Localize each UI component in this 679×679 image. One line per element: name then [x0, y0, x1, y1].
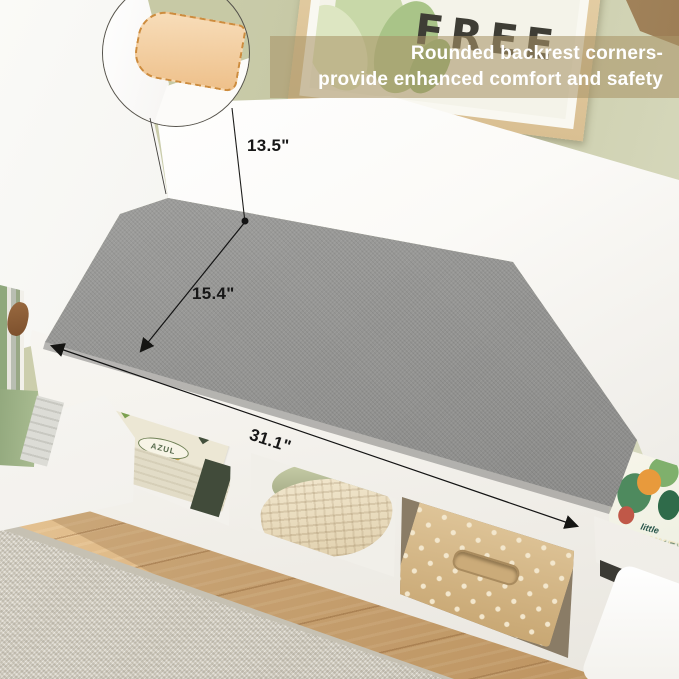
- promo-band: Rounded backrest corners- provide enhanc…: [270, 36, 679, 98]
- dimension-label-backrest-height: 13.5": [247, 136, 290, 156]
- magnifier-circle: [102, 0, 250, 127]
- book-art-leaf: [656, 489, 679, 522]
- headline-line-2: provide enhanced comfort and safety: [270, 67, 663, 93]
- headline-line-1: Rounded backrest corners-: [270, 41, 663, 67]
- dimension-label-seat-depth: 15.4": [192, 284, 235, 304]
- product-photo: FREE AZUL: [0, 0, 679, 679]
